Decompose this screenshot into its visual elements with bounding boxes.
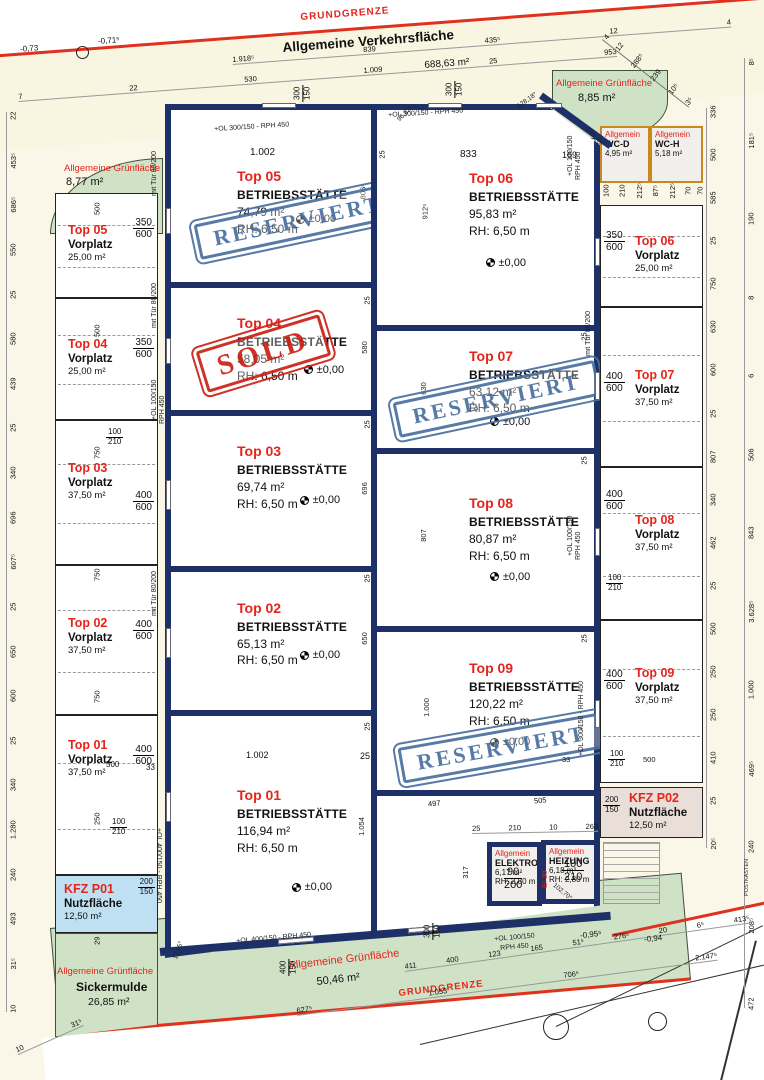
- forecourt-text: Top 08Vorplatz37,50 m²: [635, 513, 680, 553]
- unit-level: ±0,00: [300, 494, 340, 506]
- dim-value: 750: [93, 569, 101, 582]
- dim-value: 10: [549, 823, 558, 833]
- dim-value: 340: [10, 779, 18, 792]
- dim-value: 29: [93, 937, 101, 945]
- level-value: ±0,00: [499, 257, 526, 269]
- dim-value: 472: [748, 998, 756, 1011]
- door-dim: 400600: [604, 489, 625, 512]
- dim-value: 25: [10, 736, 18, 744]
- level-marker-icon: [292, 883, 301, 892]
- window-dim: 100210: [106, 428, 123, 447]
- dim-value: 240: [748, 841, 756, 854]
- forecourt-text: Top 07Vorplatz37,50 m²: [635, 368, 680, 408]
- gruenflaeche-topright-label: Allgemeine Grünfläche: [556, 78, 652, 89]
- dim-value: 493: [10, 913, 18, 926]
- window-dim: 100210: [110, 818, 127, 837]
- survey-point-icon: [648, 1012, 667, 1031]
- window-dim: 300150: [293, 85, 312, 102]
- dim-value: 25: [10, 602, 18, 610]
- dim-value: 585: [710, 192, 718, 205]
- parking-text: KFZ P02Nutzfläche12,50 m²: [629, 791, 687, 831]
- level-value-top-b: -0,71⁵: [98, 35, 120, 46]
- dim-value: 500: [643, 755, 656, 764]
- door-opening: [166, 338, 171, 364]
- dim-value: 212⁵: [668, 183, 677, 199]
- unit-level: ±0,00: [304, 364, 344, 376]
- wall-text-tuer-top02: mit Tür 80/200: [151, 571, 158, 616]
- dim-value: 411: [404, 960, 417, 971]
- dim-value: 696: [10, 511, 18, 524]
- unit-type: BETRIEBSSTÄTTE: [469, 190, 579, 204]
- dim-value: 410: [710, 752, 718, 765]
- dim-value: 1.918⁵: [232, 53, 255, 64]
- unit-top06-text: Top 06 BETRIEBSSTÄTTE 95,83 m² RH: 6,50 …: [469, 170, 579, 240]
- dim-value: 340: [710, 493, 718, 506]
- door-opening: [595, 372, 600, 400]
- door-dim: 100210: [562, 858, 584, 883]
- unit-top02: Top 02 BETRIEBSSTÄTTE 65,13 m² RH: 6,50 …: [165, 566, 378, 716]
- dim-value: 25: [10, 424, 18, 432]
- level-marker-icon: [490, 572, 499, 581]
- forecourt-area: 37,50 m²: [635, 542, 680, 553]
- dim-value: 607⁵: [10, 554, 18, 570]
- dim-value: 70: [695, 187, 704, 195]
- door-opening: [166, 628, 171, 658]
- forecourt-id: Top 06: [635, 234, 680, 248]
- dim-chain-left-outer: 22453⁵686⁵5502558043925340696607⁵2565060…: [6, 112, 20, 1012]
- dim-value: 336: [710, 105, 718, 118]
- door-opening: [595, 700, 600, 728]
- door-opening: [595, 528, 600, 556]
- unit-id: Top 06: [469, 170, 579, 186]
- dim-value: 600: [10, 690, 18, 703]
- dim-value: 839: [363, 44, 376, 54]
- dim-wall: 25: [580, 634, 589, 642]
- dim-value: 500: [93, 325, 101, 338]
- unit-height-dim: 1.054: [357, 817, 366, 836]
- gruenflaeche-topright-area: 8,85 m²: [578, 92, 615, 104]
- unit-height-dim: 630: [419, 382, 428, 395]
- unit-area: 80,87 m²: [469, 531, 579, 548]
- unit-type: BETRIEBSSTÄTTE: [469, 680, 579, 694]
- dim-value: 10: [14, 1043, 25, 1055]
- dim-value: 686⁵: [10, 197, 18, 213]
- door-dim: 200150: [138, 878, 155, 897]
- forecourt-top01: Top 01Vorplatz37,50 m² 400600: [55, 715, 158, 875]
- forecourt-id: Top 08: [635, 513, 680, 527]
- unit-level: ±0,00: [300, 649, 340, 661]
- dim-value: 600: [710, 364, 718, 377]
- room-wc-h: Allgemein WC-H 5,18 m²: [650, 126, 703, 183]
- wall-text-tuer-top07: mit Tür 80/200: [585, 311, 592, 356]
- forecourt-label: Vorplatz: [635, 529, 680, 541]
- dim-chain-left-inner: 50050075075075025029: [90, 205, 104, 945]
- dim-value: 505: [534, 795, 547, 805]
- dim-value: 807: [710, 450, 718, 463]
- wall-text-ol100-right-mid: +OL 100/150: [567, 516, 574, 556]
- window-dim: 100210: [608, 750, 625, 769]
- gruenflaeche-topleft-area: 8,77 m²: [66, 176, 103, 188]
- dim-value: 750: [710, 278, 718, 291]
- unit-type: BETRIEBSSTÄTTE: [469, 515, 579, 529]
- door-dim: 90200: [504, 866, 522, 891]
- postkasten-label: POSTKASTEN: [744, 859, 750, 896]
- unit-height-dim: 1.000: [422, 698, 431, 717]
- dim-value: 550: [10, 243, 18, 256]
- unit-top08-text: Top 08 BETRIEBSSTÄTTE 80,87 m² RH: 6,50 …: [469, 495, 579, 565]
- dim-value: 400: [446, 954, 460, 965]
- dim-value: 250: [710, 666, 718, 679]
- door-opening: [166, 480, 171, 510]
- dim-value: 706⁵: [563, 969, 580, 980]
- dim-value: 22: [10, 112, 18, 120]
- dim-value: 25: [472, 824, 481, 834]
- unit-id: Top 01: [237, 787, 347, 803]
- forecourt-area: 25,00 m²: [635, 263, 680, 274]
- unit-id: Top 05: [237, 168, 347, 184]
- unit-id: Top 07: [469, 348, 579, 364]
- window-dim: 300150: [423, 923, 442, 940]
- unit-clear-height: RH: 6,50 m: [469, 223, 579, 240]
- door-opening: [166, 208, 171, 234]
- dim-value: 2.147⁵: [695, 951, 718, 963]
- dim-value: 212⁵: [635, 183, 644, 199]
- dim-value: 500: [710, 622, 718, 635]
- dim-value: 87⁵: [651, 185, 660, 196]
- dim-value: 10: [10, 1004, 18, 1012]
- dim-wall: 25: [378, 150, 387, 158]
- dim-value: 435⁵: [484, 35, 500, 46]
- dim-wall: 25: [363, 420, 372, 428]
- unit-clear-height: RH: 6,50 m: [469, 548, 579, 565]
- stairs: [603, 842, 660, 904]
- dim-value: 4: [726, 18, 731, 28]
- parking-label: Nutzfläche: [629, 807, 687, 819]
- dim-value: 3.628⁵: [748, 601, 756, 623]
- window-dim: 300150: [445, 81, 464, 98]
- dim-value: 100: [602, 184, 611, 197]
- dim-value: 413⁵: [733, 914, 750, 925]
- unit-level: ±0,00: [292, 881, 332, 893]
- sickermulde-label: Sickermulde: [76, 980, 147, 994]
- dim-value: 181⁵: [748, 132, 756, 148]
- level-marker-icon: [490, 417, 499, 426]
- level-value-bottom-b: -0,94: [644, 933, 663, 944]
- dim-wall: 25: [363, 722, 372, 730]
- dim-value: 497: [428, 798, 441, 808]
- dim-value: 4: [602, 32, 612, 41]
- dim-value: 843: [748, 527, 756, 540]
- level-value: ±0,00: [313, 649, 340, 661]
- unit-top06: Top 06 BETRIEBSSTÄTTE 95,83 m² RH: 6,50 …: [371, 104, 600, 332]
- fire-rating-label: EI 30: [540, 870, 549, 888]
- dim-value: 1.000: [748, 681, 756, 700]
- window-dim: 100210: [606, 574, 623, 593]
- dim-value: 33: [146, 763, 155, 772]
- wall-text-tuer-top05: mit Tür 80/200: [151, 151, 158, 196]
- dim-value: 165: [530, 943, 544, 954]
- dim-interior-width: 1.002: [250, 147, 275, 158]
- level-value: ±0,00: [317, 364, 344, 376]
- unit-height-dim: 580: [360, 341, 369, 354]
- sickermulde-area: 26,85 m²: [88, 996, 129, 1008]
- dim-value: 340: [10, 466, 18, 479]
- sickermulde-zone-label: Allgemeine Grünfläche: [57, 966, 153, 977]
- dim-value: 25: [710, 237, 718, 245]
- unit-clear-height: RH: 6,50 m: [237, 840, 347, 857]
- unit-top07: Top 07 BETRIEBSSTÄTTE 63,12 m² RH: 6,50 …: [371, 325, 600, 455]
- room-area: 4,95 m²: [605, 149, 645, 158]
- unit-top04: Top 04 BETRIEBSSTÄTTE 58,05 m² RH: 6,50 …: [165, 282, 378, 416]
- dim-interior-width: 833: [460, 149, 477, 160]
- forecourt-top02: Top 02Vorplatz37,50 m² 400600: [55, 565, 158, 715]
- unit-id: Top 02: [237, 600, 347, 616]
- unit-level: ±0,00: [490, 416, 530, 428]
- dim-wall: 25: [363, 296, 372, 304]
- dim-value: 123: [488, 948, 502, 959]
- forecourt-area: 37,50 m²: [635, 397, 680, 408]
- unit-height-dim: 807: [419, 530, 428, 543]
- unit-type: BETRIEBSSTÄTTE: [237, 807, 347, 821]
- room-tag: Allgemein: [549, 847, 591, 856]
- dim-value: 20⁵: [710, 838, 718, 849]
- wall-text-ol100-right-top: +OL 100/150: [567, 136, 574, 176]
- unit-area: 95,83 m²: [469, 206, 579, 223]
- wall-text-ol300-right-bottom: +OL 300/150 - RPH 450: [578, 681, 585, 756]
- wall-text-rph-right-mid: RPH 450: [575, 532, 582, 560]
- dim-value: 210: [617, 184, 626, 197]
- forecourt-label: Vorplatz: [635, 250, 680, 262]
- unit-height-dim: 650: [360, 632, 369, 645]
- gruenflaeche-topleft-label: Allgemeine Grünfläche: [64, 163, 160, 174]
- door-dim: 400600: [133, 490, 154, 513]
- dim-value: 25: [710, 797, 718, 805]
- dim-value: 190: [748, 213, 756, 226]
- dim-value: 630: [710, 321, 718, 334]
- dim-value: 250: [93, 813, 101, 826]
- dim-value: 650: [10, 645, 18, 658]
- dim-value: 750: [93, 691, 101, 704]
- dim-value: 33: [562, 755, 570, 764]
- room-area: 5,18 m²: [655, 149, 698, 158]
- unit-id: Top 08: [469, 495, 579, 511]
- unit-type: BETRIEBSSTÄTTE: [237, 463, 347, 477]
- level-value: ±0,00: [503, 416, 530, 428]
- unit-type: BETRIEBSSTÄTTE: [237, 620, 347, 634]
- unit-top08: Top 08 BETRIEBSSTÄTTE 80,87 m² RH: 6,50 …: [371, 448, 600, 632]
- dim-value: 453⁵: [10, 153, 18, 169]
- dim-value: 70: [683, 187, 692, 195]
- unit-level: ±0,00: [486, 257, 526, 269]
- dim-wall: 25: [363, 574, 372, 582]
- door-dim: 400600: [604, 371, 625, 394]
- dim-wall: 25: [360, 751, 370, 761]
- parking-kfz-p02: KFZ P02Nutzfläche12,50 m² 200150: [600, 787, 703, 838]
- dim-value: 500: [710, 149, 718, 162]
- forecourt-top04: Top 04Vorplatz25,00 m² 350600: [55, 298, 158, 420]
- forecourt-label: Vorplatz: [635, 384, 680, 396]
- room-tag: Allgemein: [605, 130, 645, 139]
- dim-value: 25: [710, 409, 718, 417]
- door-dim: 400600: [604, 669, 625, 692]
- dim-value: 276⁵: [613, 930, 630, 941]
- wall-text-rph-left: RPH 450: [159, 396, 166, 424]
- dim-value: 462: [710, 536, 718, 549]
- forecourt-top06: Top 06Vorplatz25,00 m² 350600: [600, 205, 703, 307]
- dim-value: 260: [585, 822, 598, 832]
- wall-text-ol100-left: +OL 100/150: [151, 380, 158, 420]
- door-dim: 350600: [133, 337, 154, 360]
- forecourt-label: Vorplatz: [635, 682, 680, 694]
- level-value-top-a: -0,73: [20, 43, 39, 53]
- window-opening: [536, 103, 562, 108]
- forecourt-id: Top 07: [635, 368, 680, 382]
- dim-value: 210: [508, 823, 521, 833]
- door-opening: [166, 792, 171, 822]
- unit-level: ±0,00: [490, 571, 530, 583]
- dim-wall: 25: [580, 456, 589, 464]
- forecourt-area: 37,50 m²: [635, 695, 680, 706]
- survey-point-icon: [543, 1014, 569, 1040]
- parking-area: 12,50 m²: [629, 820, 687, 831]
- forecourt-text: Top 06Vorplatz25,00 m²: [635, 234, 680, 274]
- wall-text-tuer-top04: mit Tür 80/200: [151, 283, 158, 328]
- level-value: ±0,00: [503, 571, 530, 583]
- forecourt-top07: Top 07Vorplatz37,50 m² 400600: [600, 307, 703, 467]
- unit-area: 120,22 m²: [469, 696, 579, 713]
- dim-value: 469⁵: [748, 761, 756, 777]
- dim-value: 1.009: [363, 65, 382, 76]
- forecourt-top05: Top 05Vorplatz25,00 m² 350600: [55, 193, 158, 298]
- dim-value: 317: [461, 866, 470, 879]
- level-marker-icon: [300, 496, 309, 505]
- unit-top01-text: Top 01 BETRIEBSSTÄTTE 116,94 m² RH: 6,50…: [237, 787, 347, 857]
- unit-area: 116,94 m²: [237, 823, 347, 840]
- unit-top09: Top 09 BETRIEBSSTÄTTE 120,22 m² RH: 6,50…: [371, 626, 600, 796]
- room-tag: Allgemein: [495, 849, 534, 858]
- unit-id: Top 09: [469, 660, 579, 676]
- door-dim: 400600: [133, 619, 154, 642]
- dim-value: 31⁵: [10, 958, 18, 969]
- site-plan-sheet: GRUNDGRENZE Allgemeine Verkehrsfläche 68…: [0, 0, 764, 1080]
- dim-value: 750: [93, 447, 101, 460]
- parking-id: KFZ P02: [629, 791, 687, 805]
- dim-value: 8: [748, 295, 756, 299]
- forecourt-id: Top 09: [635, 666, 680, 680]
- level-value: ±0,00: [313, 494, 340, 506]
- dim-chain-wc: 100210212⁵87⁵212⁵7070: [600, 186, 704, 195]
- dim-value: 8⁵: [748, 58, 756, 65]
- door-dim: 350600: [133, 217, 154, 240]
- dim-value: 530: [244, 74, 257, 84]
- forecourt-text: Top 09Vorplatz37,50 m²: [635, 666, 680, 706]
- window-opening: [262, 103, 296, 108]
- dim-value: 240: [10, 868, 18, 881]
- dim-value: 6⁵: [696, 920, 705, 930]
- wall-text-ol400-left: +OL 400/150 - RPH 450: [155, 828, 162, 903]
- dim-chain-right-inner: 3365005852575063060025807340462255002502…: [706, 108, 720, 848]
- unit-top01: Top 01 BETRIEBSSTÄTTE 116,94 m² RH: 6,50…: [165, 710, 378, 958]
- door-dim: 200150: [603, 796, 620, 815]
- unit-top05: Top 05 BETRIEBSSTÄTTE 74,79 m² RH: 6,50 …: [165, 104, 378, 288]
- window-dim: 400150: [279, 959, 298, 976]
- dim-interior-width: 1.002: [246, 750, 269, 760]
- dim-value: 25: [10, 290, 18, 298]
- dim-value: 506: [748, 448, 756, 461]
- dim-value: 1.280: [10, 820, 18, 839]
- unit-id: Top 03: [237, 443, 347, 459]
- dim-value: 1.053: [428, 986, 448, 998]
- dim-value: 500: [93, 202, 101, 215]
- forecourt-top08: Top 08Vorplatz37,50 m² 400600: [600, 467, 703, 620]
- unit-height-dim: 696: [360, 482, 369, 495]
- room-wc-d: Allgemein WC-D 4,95 m²: [600, 126, 650, 183]
- wall-text-rph-right-top: RPH 450: [575, 152, 582, 180]
- survey-point-icon: [76, 46, 89, 59]
- door-opening: [595, 238, 600, 266]
- dim-value: 7: [18, 92, 23, 102]
- level-marker-icon: [300, 651, 309, 660]
- dim-value: 500: [106, 760, 119, 769]
- dim-value: 627⁵: [296, 1004, 313, 1015]
- dim-chain-technik: 2521010260: [472, 822, 598, 835]
- unit-height-dim: 912⁵: [420, 204, 429, 220]
- unit-top03: Top 03 BETRIEBSSTÄTTE 69,74 m² RH: 6,50 …: [165, 410, 378, 572]
- door-dim: 350600: [604, 230, 625, 253]
- level-value: ±0,00: [305, 881, 332, 893]
- dim-value: 250: [710, 709, 718, 722]
- room-id: WC-H: [655, 139, 698, 149]
- dim-value: 25: [489, 56, 498, 66]
- dim-value: 25: [710, 581, 718, 589]
- dim-value: 439: [10, 377, 18, 390]
- level-marker-icon: [304, 365, 313, 374]
- dim-value: 580: [10, 333, 18, 346]
- room-tag: Allgemein: [655, 130, 698, 139]
- parking-kfz-p01: KFZ P01Nutzfläche12,50 m² 200150: [55, 875, 158, 933]
- dim-value: 22: [129, 83, 138, 93]
- dim-value: 6: [748, 374, 756, 378]
- level-marker-icon: [486, 258, 495, 267]
